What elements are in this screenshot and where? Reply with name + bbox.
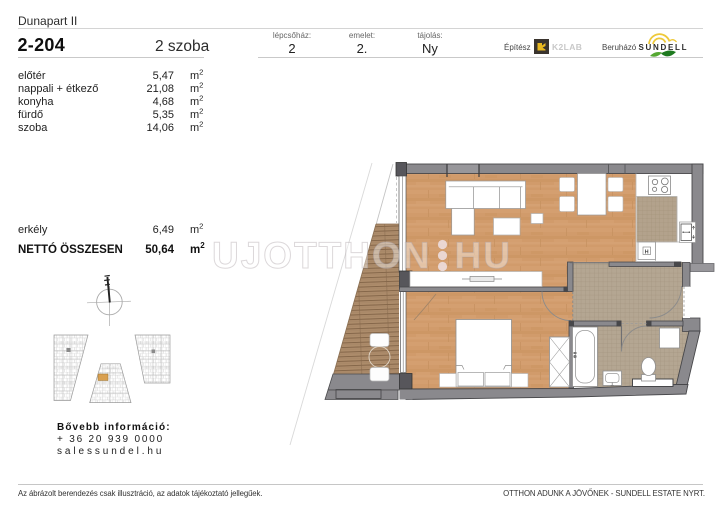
svg-text:HU: HU	[455, 235, 512, 276]
svg-text:UJOTTHON: UJOTTHON	[212, 235, 432, 276]
svg-text:H: H	[645, 249, 649, 255]
